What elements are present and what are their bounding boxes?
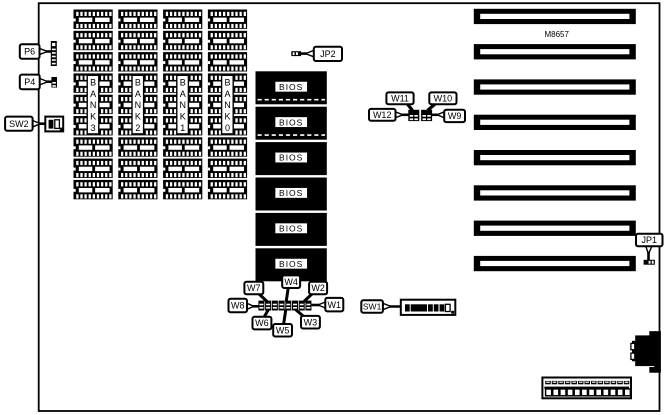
svg-text:W11: W11 <box>391 94 409 104</box>
svg-text:W8: W8 <box>231 301 245 311</box>
svg-text:N: N <box>90 100 97 110</box>
svg-text:W6: W6 <box>255 318 269 328</box>
svg-text:W9: W9 <box>448 111 462 121</box>
svg-text:N: N <box>135 100 142 110</box>
svg-text:BIOS: BIOS <box>279 224 303 234</box>
svg-text:W2: W2 <box>311 283 325 293</box>
svg-text:W4: W4 <box>284 277 298 287</box>
svg-text:BIOS: BIOS <box>279 82 303 92</box>
svg-text:W1: W1 <box>328 300 342 310</box>
svg-text:N: N <box>224 100 231 110</box>
svg-text:3: 3 <box>91 123 96 133</box>
svg-text:K: K <box>90 112 96 122</box>
svg-text:A: A <box>224 89 230 99</box>
svg-text:W3: W3 <box>304 317 318 327</box>
svg-text:BIOS: BIOS <box>279 259 303 269</box>
svg-text:SW1: SW1 <box>363 302 382 312</box>
svg-text:B: B <box>180 78 186 88</box>
svg-text:2: 2 <box>135 123 140 133</box>
svg-text:W12: W12 <box>373 110 392 120</box>
svg-text:BIOS: BIOS <box>279 153 303 163</box>
svg-text:M8657: M8657 <box>544 30 569 39</box>
svg-text:A: A <box>90 89 96 99</box>
svg-text:P4: P4 <box>24 77 35 87</box>
svg-text:0: 0 <box>225 123 230 133</box>
svg-text:K: K <box>180 112 186 122</box>
svg-text:N: N <box>179 100 186 110</box>
svg-text:B: B <box>90 78 96 88</box>
svg-text:A: A <box>180 89 186 99</box>
svg-text:A: A <box>135 89 141 99</box>
svg-text:K: K <box>224 112 230 122</box>
svg-text:W7: W7 <box>247 283 261 293</box>
svg-text:1: 1 <box>180 123 185 133</box>
svg-text:P6: P6 <box>24 47 35 57</box>
svg-text:JP2: JP2 <box>320 49 336 59</box>
svg-text:JP1: JP1 <box>641 235 657 245</box>
svg-text:B: B <box>224 78 230 88</box>
svg-text:W10: W10 <box>434 94 453 104</box>
svg-text:BIOS: BIOS <box>279 188 303 198</box>
svg-text:W5: W5 <box>276 325 290 335</box>
svg-text:SW2: SW2 <box>9 119 29 129</box>
svg-text:BIOS: BIOS <box>279 117 303 127</box>
svg-text:K: K <box>135 112 141 122</box>
svg-text:B: B <box>135 78 141 88</box>
